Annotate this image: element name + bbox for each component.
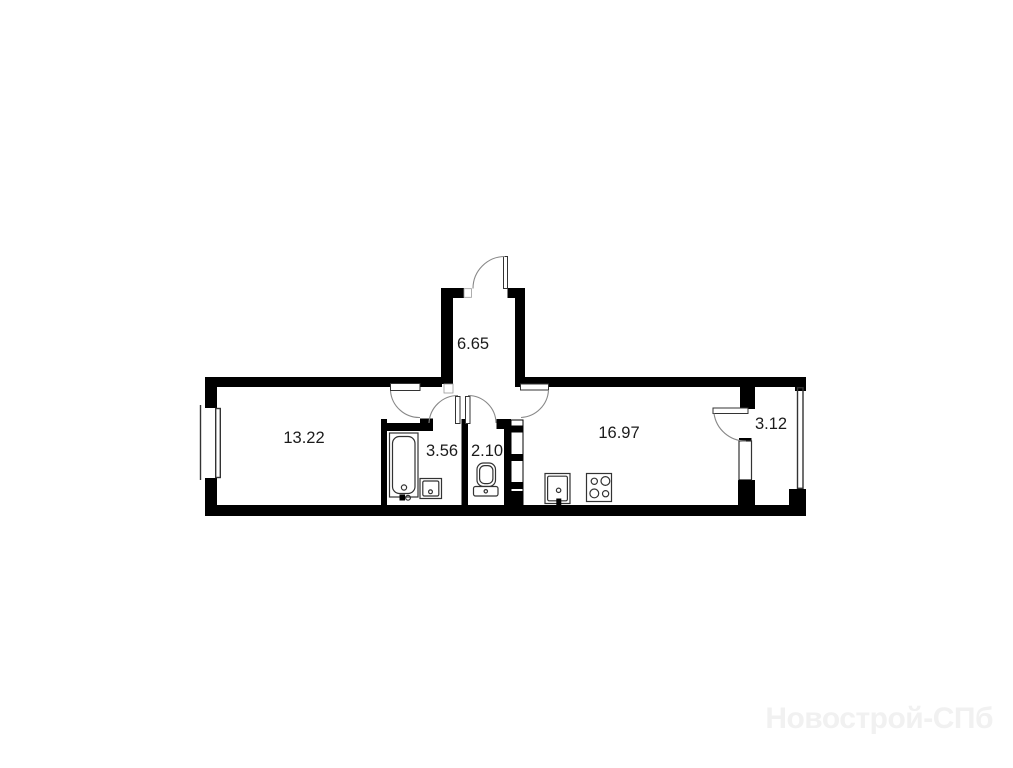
entrance-door	[473, 257, 508, 289]
kitchen-door-leaf	[521, 384, 549, 390]
watermark-text: Новострой-СПб	[765, 702, 993, 736]
wc-right-wall	[504, 419, 511, 505]
balcony-door	[713, 408, 748, 441]
living-room-window-icon	[201, 405, 222, 480]
area-label-balcony: 3.12	[755, 415, 787, 433]
balcony-window-icon	[739, 438, 752, 483]
bathroom-sink-icon	[420, 479, 442, 499]
bathtub-faucet	[400, 495, 406, 501]
window-cap	[739, 480, 752, 483]
toilet-tank	[474, 487, 499, 497]
bottom-wall	[205, 505, 806, 516]
glazing-top-block	[795, 377, 806, 391]
balcony-partition-lower-stub	[738, 480, 755, 507]
bathroom-door-leaf	[456, 397, 461, 424]
balcony-glazing-icon	[798, 387, 804, 489]
living-room-door	[391, 384, 421, 418]
kitchen-sink-tap	[556, 499, 561, 506]
kitchen-door-arc	[521, 390, 549, 418]
entrance-door-leaf	[504, 257, 508, 289]
room-area-labels: 6.65 13.22 3.56 2.10 16.97 3.12	[283, 335, 787, 460]
living-room-right-wall	[381, 419, 387, 505]
living-room-door-leaf	[391, 384, 421, 391]
glazing-bottom-block	[789, 489, 806, 516]
toilet-icon	[474, 463, 499, 496]
vent-shaft-rung	[511, 454, 523, 461]
bath-wc-partition-wall	[462, 427, 469, 505]
balcony-door-arc	[714, 414, 746, 442]
hallway-top-wall-left	[441, 288, 464, 298]
balcony-partition-upper-stub	[740, 377, 755, 409]
vent-shaft-rung	[511, 426, 523, 433]
bathroom-door-arc	[429, 395, 458, 423]
area-label-living-room: 13.22	[283, 429, 324, 447]
bathtub-icon	[390, 433, 419, 501]
vent-shaft-rung	[511, 491, 523, 505]
hallway-wall-end-jamb	[444, 384, 453, 393]
bathroom-door-jamb-step	[420, 419, 433, 432]
hallway-left-wall	[441, 288, 453, 384]
living-room-door-arc	[391, 391, 421, 418]
floor-plan: 6.65 13.22 3.56 2.10 16.97 3.12 Новостро…	[0, 0, 1013, 768]
entrance-door-jamb	[464, 289, 472, 298]
kitchen-sink-icon	[545, 474, 570, 506]
vent-shaft-rung	[511, 482, 523, 489]
wc-door	[466, 396, 497, 424]
bathtub-outer	[390, 433, 419, 497]
vent-shaft-icon	[511, 420, 523, 505]
bathroom-top-wall	[383, 423, 420, 431]
hallway-right-wall	[515, 288, 525, 387]
area-label-kitchen: 16.97	[598, 424, 639, 442]
window-frame	[739, 441, 752, 480]
area-label-hallway: 6.65	[457, 335, 489, 353]
kitchen-door	[521, 384, 549, 418]
area-label-bathroom: 3.56	[426, 442, 458, 460]
walls	[205, 288, 806, 516]
wc-door-leaf	[466, 397, 471, 424]
entrance-door-arc	[473, 257, 505, 289]
bathroom-door	[429, 395, 460, 423]
wc-door-arc	[468, 396, 496, 424]
balcony-door-leaf	[713, 408, 748, 414]
stove-icon	[587, 474, 612, 502]
area-label-wc: 2.10	[471, 442, 503, 460]
floor-plan-drawing: 6.65 13.22 3.56 2.10 16.97 3.12	[0, 0, 1013, 768]
